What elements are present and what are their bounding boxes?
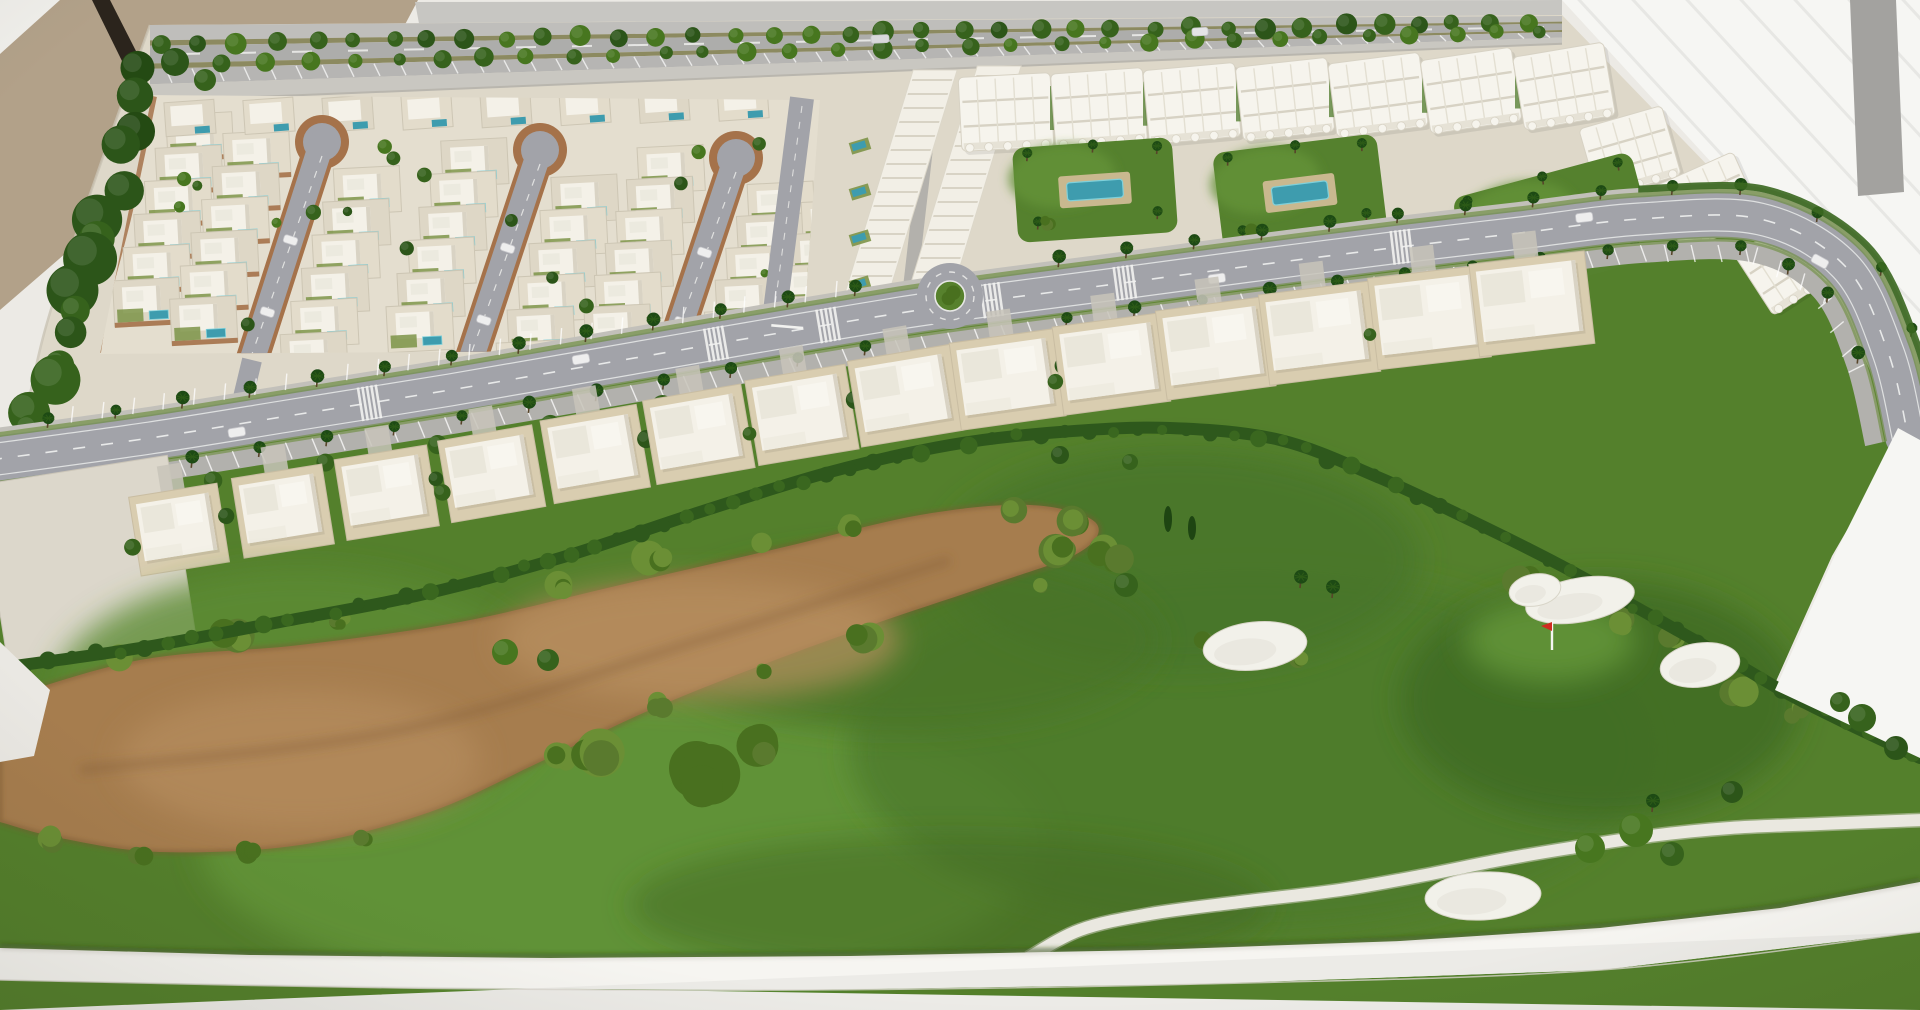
photo-overlay xyxy=(0,0,1920,1010)
model-scene xyxy=(0,0,1920,1010)
photo-vignette xyxy=(0,0,1920,1010)
scale-model-photo xyxy=(0,0,1920,1010)
